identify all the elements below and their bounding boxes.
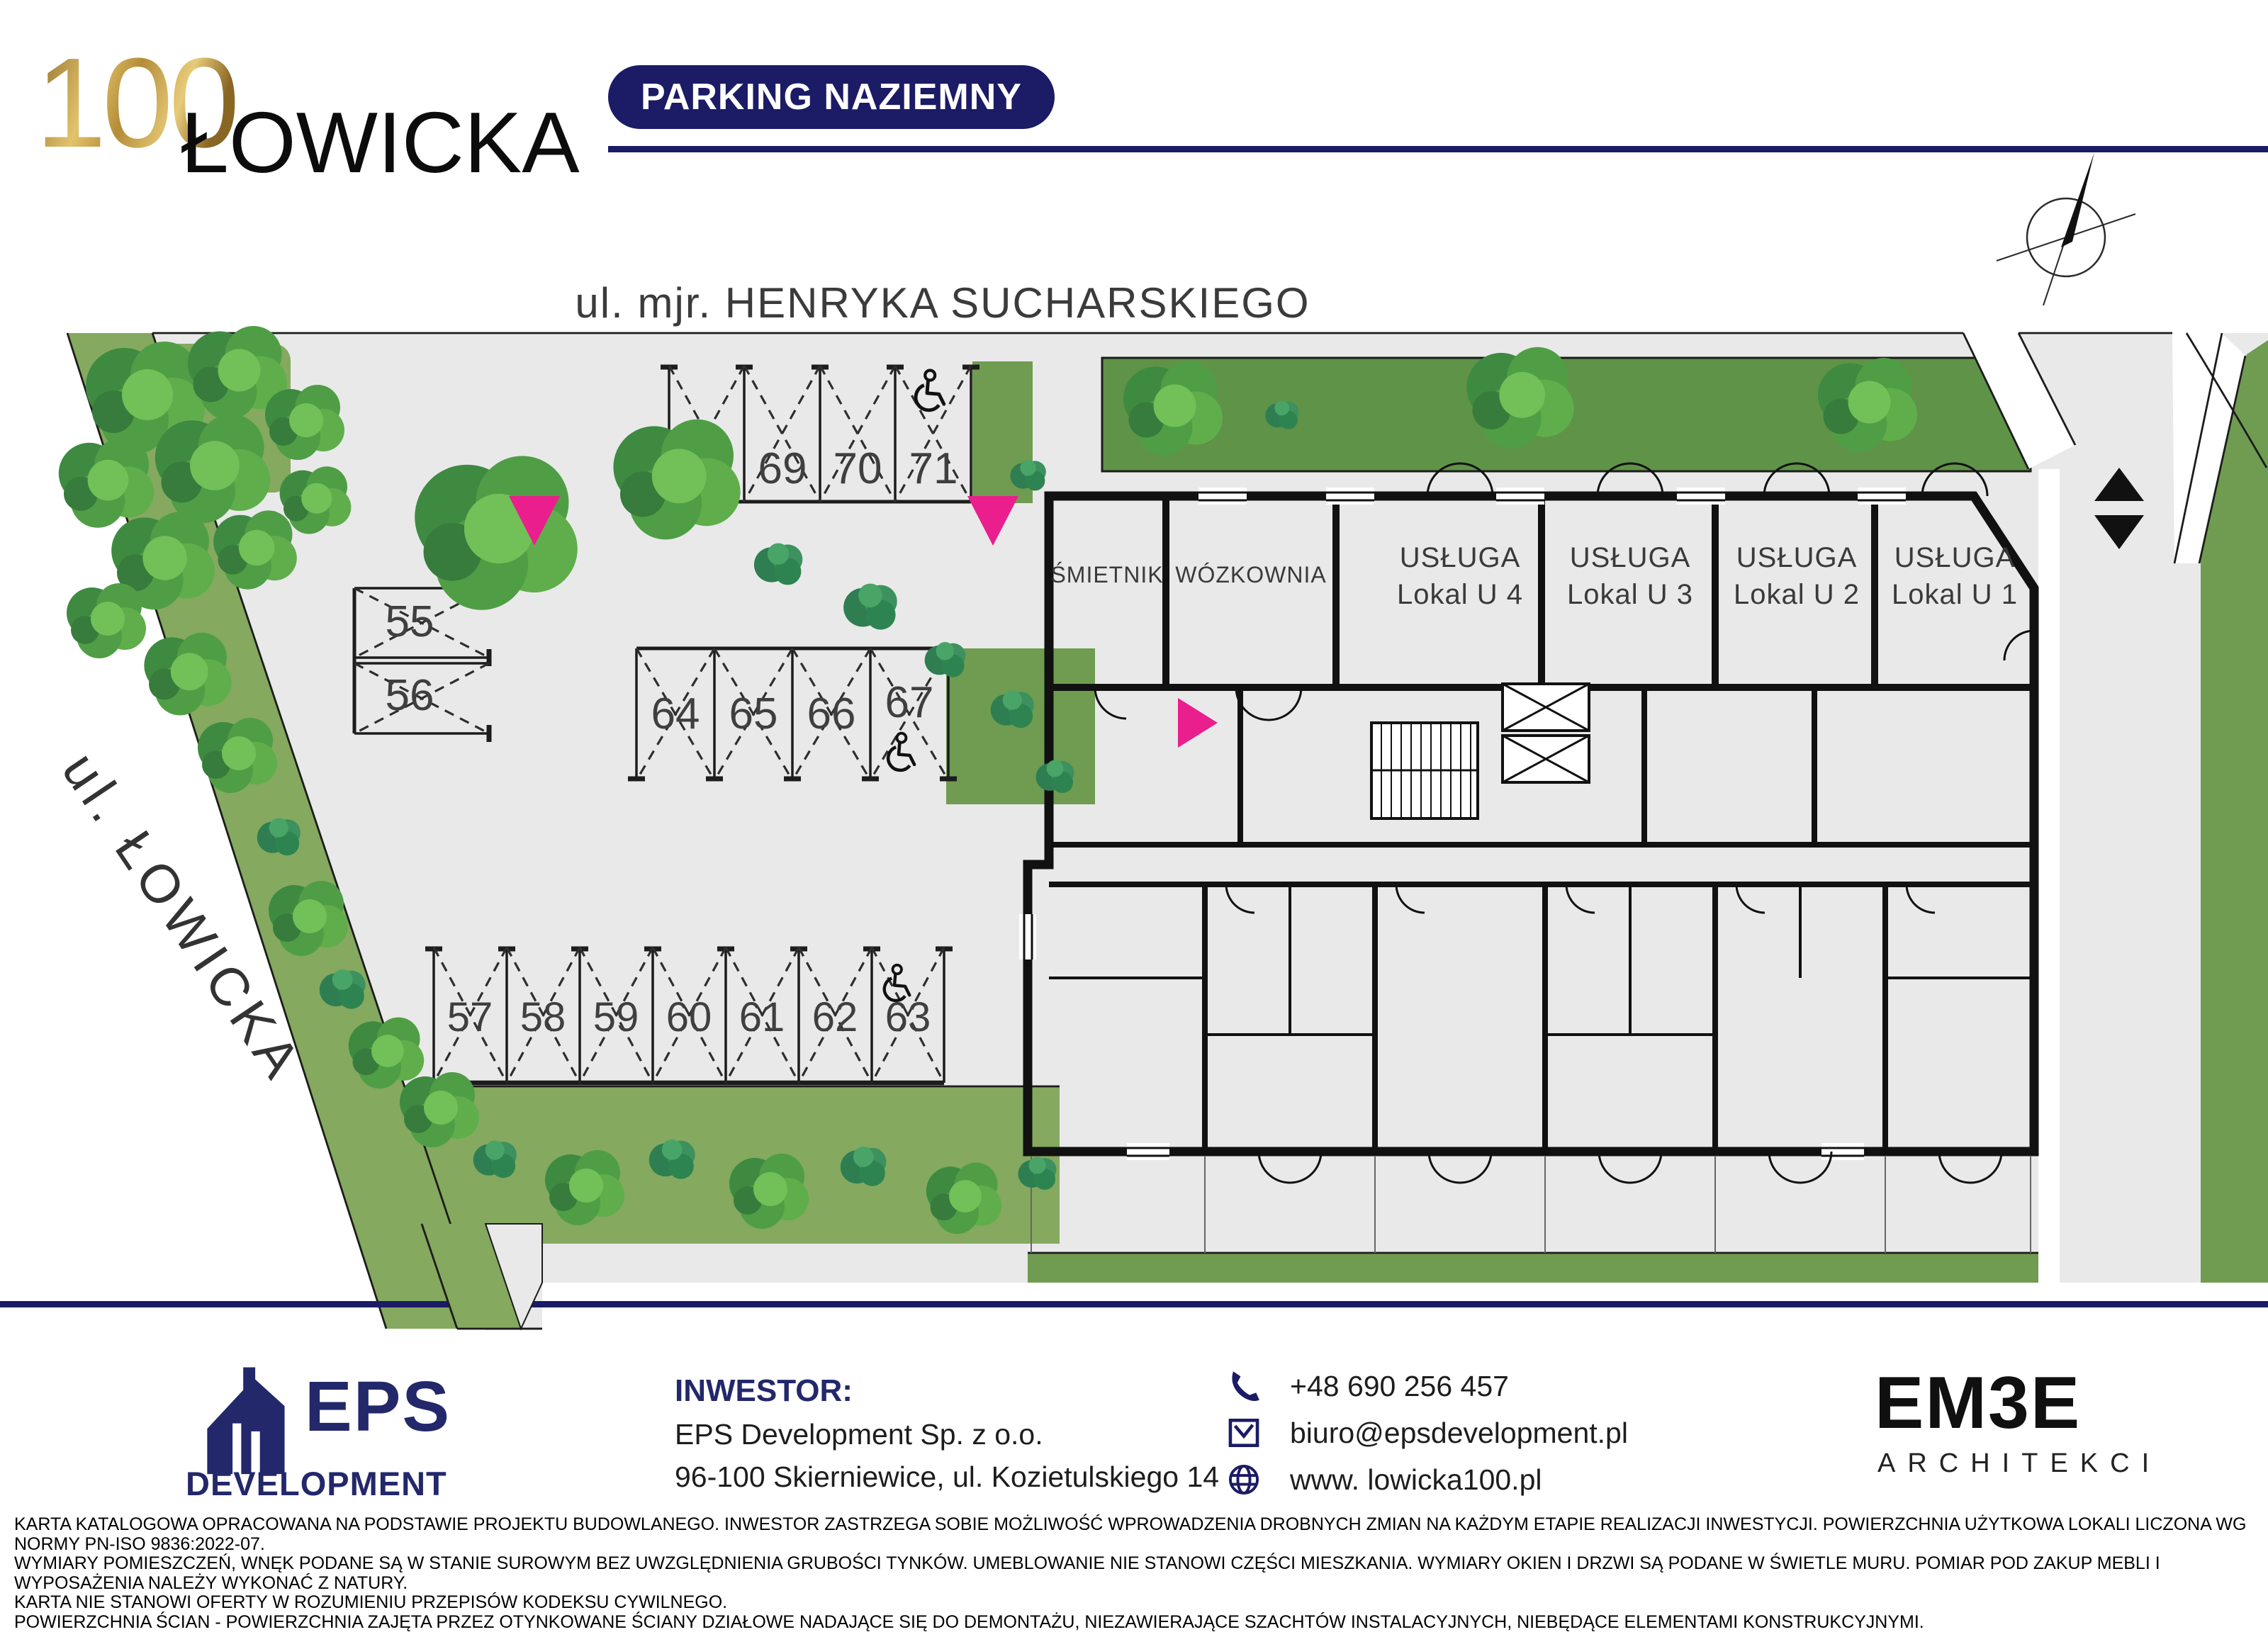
contact-phone-row: +48 690 256 457 [1228, 1368, 1628, 1405]
site-plan: 68 69 70 71 55 56 64 65 66 67 57 58 59 6… [0, 142, 2268, 1339]
parking-space-number: 69 [758, 444, 807, 493]
contact-email-row: biuro@epsdevelopment.pl [1228, 1414, 1628, 1451]
unit-label-u4: Lokal U 4 [1397, 579, 1523, 610]
eps-logo: EPS DEVELOPMENT [183, 1362, 509, 1504]
phone-number: +48 690 256 457 [1290, 1370, 1509, 1403]
parking-space-number: 58 [520, 994, 566, 1040]
street-label-top: ul. mjr. HENRYKA SUCHARSKIEGO [575, 279, 1310, 327]
parking-space-number: 67 [885, 678, 934, 727]
eps-logo-subtext: DEVELOPMENT [186, 1464, 447, 1503]
unit-label-usluga: USŁUGA [1570, 542, 1691, 573]
legal-disclaimer: KARTA KATALOGOWA OPRACOWANA NA PODSTAWIE… [14, 1515, 2264, 1632]
legal-line: KARTA NIE STANOWI OFERTY W ROZUMIENIU PR… [14, 1593, 2264, 1613]
embe-logo: EM3E ARCHITEKCI [1875, 1366, 2161, 1479]
investor-label: INWESTOR: [675, 1373, 1219, 1409]
contact-web-row: www. lowicka100.pl [1228, 1461, 1628, 1498]
globe-icon [1228, 1463, 1260, 1496]
parking-space-number: 56 [386, 671, 434, 720]
investor-block: INWESTOR: EPS Development Sp. z o.o. 96-… [675, 1373, 1219, 1494]
unit-label-u1: Lokal U 1 [1892, 579, 2018, 610]
parking-space-number: 66 [807, 690, 856, 738]
investor-name: EPS Development Sp. z o.o. [675, 1418, 1219, 1451]
website-url: www. lowicka100.pl [1290, 1463, 1542, 1497]
parking-space-number: 65 [729, 690, 778, 738]
parking-space-number: 55 [386, 597, 434, 646]
embe-logo-subtext: ARCHITEKCI [1877, 1448, 2161, 1479]
room-label-wozkownia: WÓZKOWNIA [1175, 562, 1326, 587]
site-ground [67, 333, 2268, 1329]
email-address: biuro@epsdevelopment.pl [1290, 1417, 1628, 1450]
phone-icon [1228, 1370, 1260, 1402]
plan-type-badge: PARKING NAZIEMNY [608, 65, 1055, 129]
eps-logo-icon [189, 1362, 302, 1475]
parking-space-number: 61 [739, 994, 785, 1040]
embe-logo-text: EM3E [1875, 1366, 2161, 1440]
legal-line: POWIERZCHNIA ŚCIAN - POWIERZCHNIA ZAJĘTA… [14, 1613, 2264, 1632]
parking-space-number: 59 [593, 994, 639, 1040]
parking-space-number: 60 [666, 994, 712, 1040]
unit-label-u2: Lokal U 2 [1734, 579, 1860, 610]
investor-address: 96-100 Skierniewice, ul. Kozietulskiego … [675, 1461, 1219, 1494]
parking-space-number: 64 [651, 690, 700, 738]
eps-logo-text: EPS [305, 1366, 451, 1448]
legal-line: WYMIARY POMIESZCZEŃ, WNĘK PODANE SĄ W ST… [14, 1554, 2264, 1593]
unit-label-usluga: USŁUGA [1894, 542, 2016, 573]
unit-label-usluga: USŁUGA [1400, 542, 1521, 573]
compass-icon [1997, 152, 2135, 305]
unit-label-u3: Lokal U 3 [1567, 579, 1693, 610]
email-icon [1228, 1417, 1260, 1449]
parking-space-number: 70 [833, 444, 882, 493]
parking-space-number: 71 [909, 444, 958, 493]
room-label-smietnik: ŚMIETNIK [1050, 562, 1163, 587]
contact-block: +48 690 256 457 biuro@epsdevelopment.pl … [1228, 1368, 1628, 1508]
parking-space-number: 62 [812, 994, 858, 1040]
parking-space-number: 57 [447, 994, 493, 1040]
unit-label-usluga: USŁUGA [1736, 542, 1858, 573]
legal-line: KARTA KATALOGOWA OPRACOWANA NA PODSTAWIE… [14, 1515, 2264, 1554]
footer-divider [0, 1301, 2268, 1307]
